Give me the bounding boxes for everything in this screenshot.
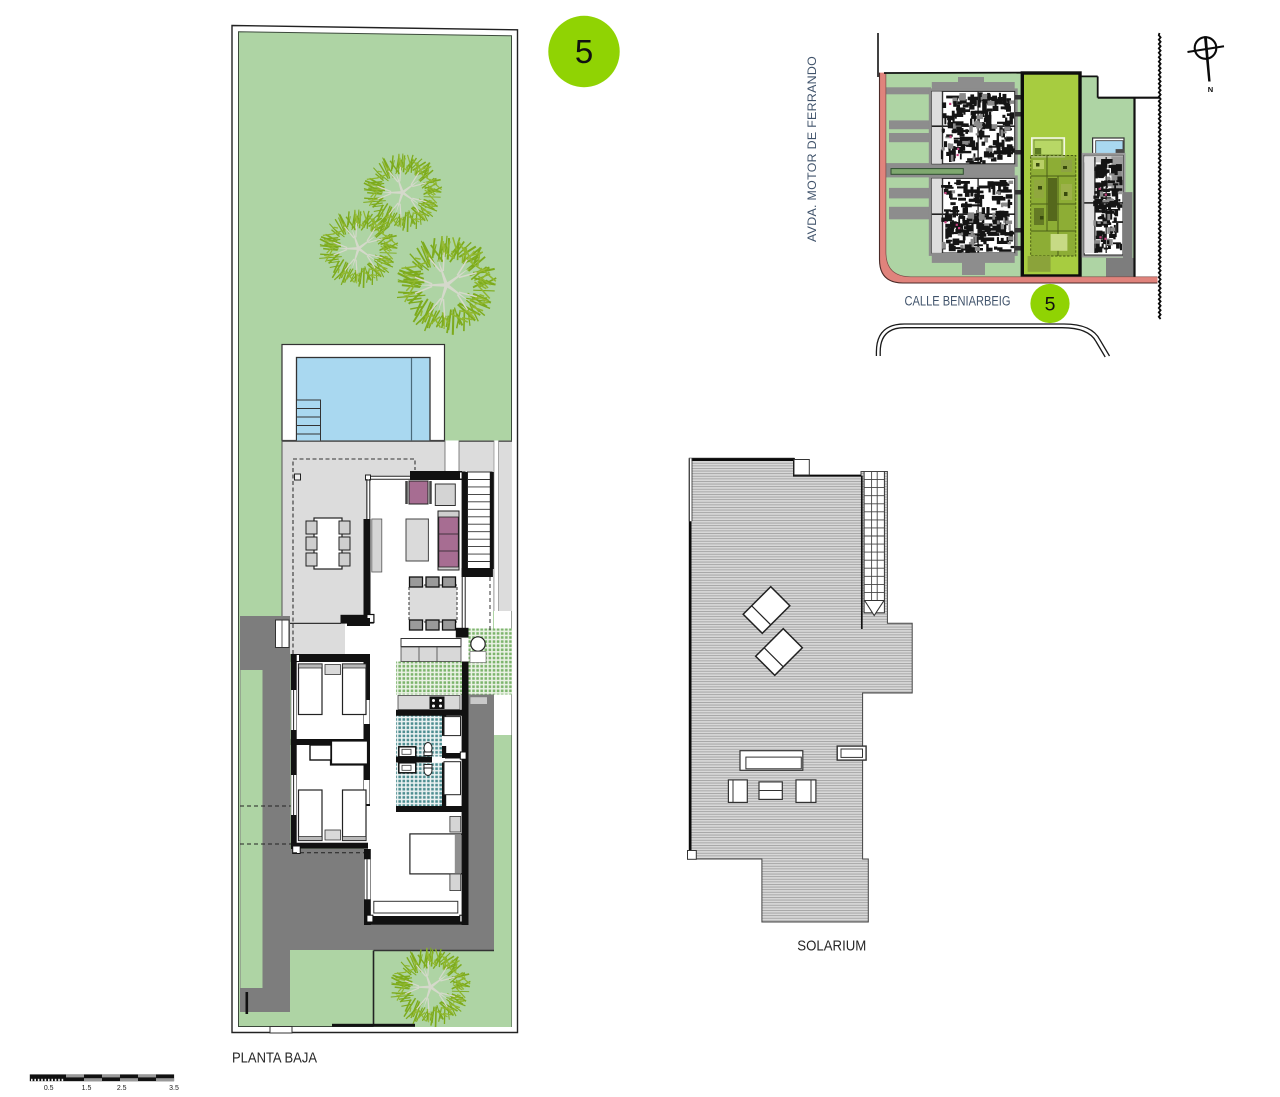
svg-text:AVDA. MOTOR DE FERRANDO: AVDA. MOTOR DE FERRANDO — [805, 56, 819, 242]
svg-text:5: 5 — [575, 33, 593, 70]
svg-text:SOLARIUM: SOLARIUM — [797, 938, 866, 955]
svg-text:3.5: 3.5 — [169, 1085, 179, 1092]
svg-text:CALLE BENIARBEIG: CALLE BENIARBEIG — [905, 294, 1011, 309]
svg-text:N: N — [1208, 85, 1213, 94]
svg-text:1.5: 1.5 — [82, 1085, 92, 1092]
svg-text:0.5: 0.5 — [44, 1085, 54, 1092]
svg-text:PLANTA BAJA: PLANTA BAJA — [232, 1050, 317, 1067]
svg-text:2.5: 2.5 — [117, 1085, 127, 1092]
svg-text:5: 5 — [1045, 293, 1056, 315]
